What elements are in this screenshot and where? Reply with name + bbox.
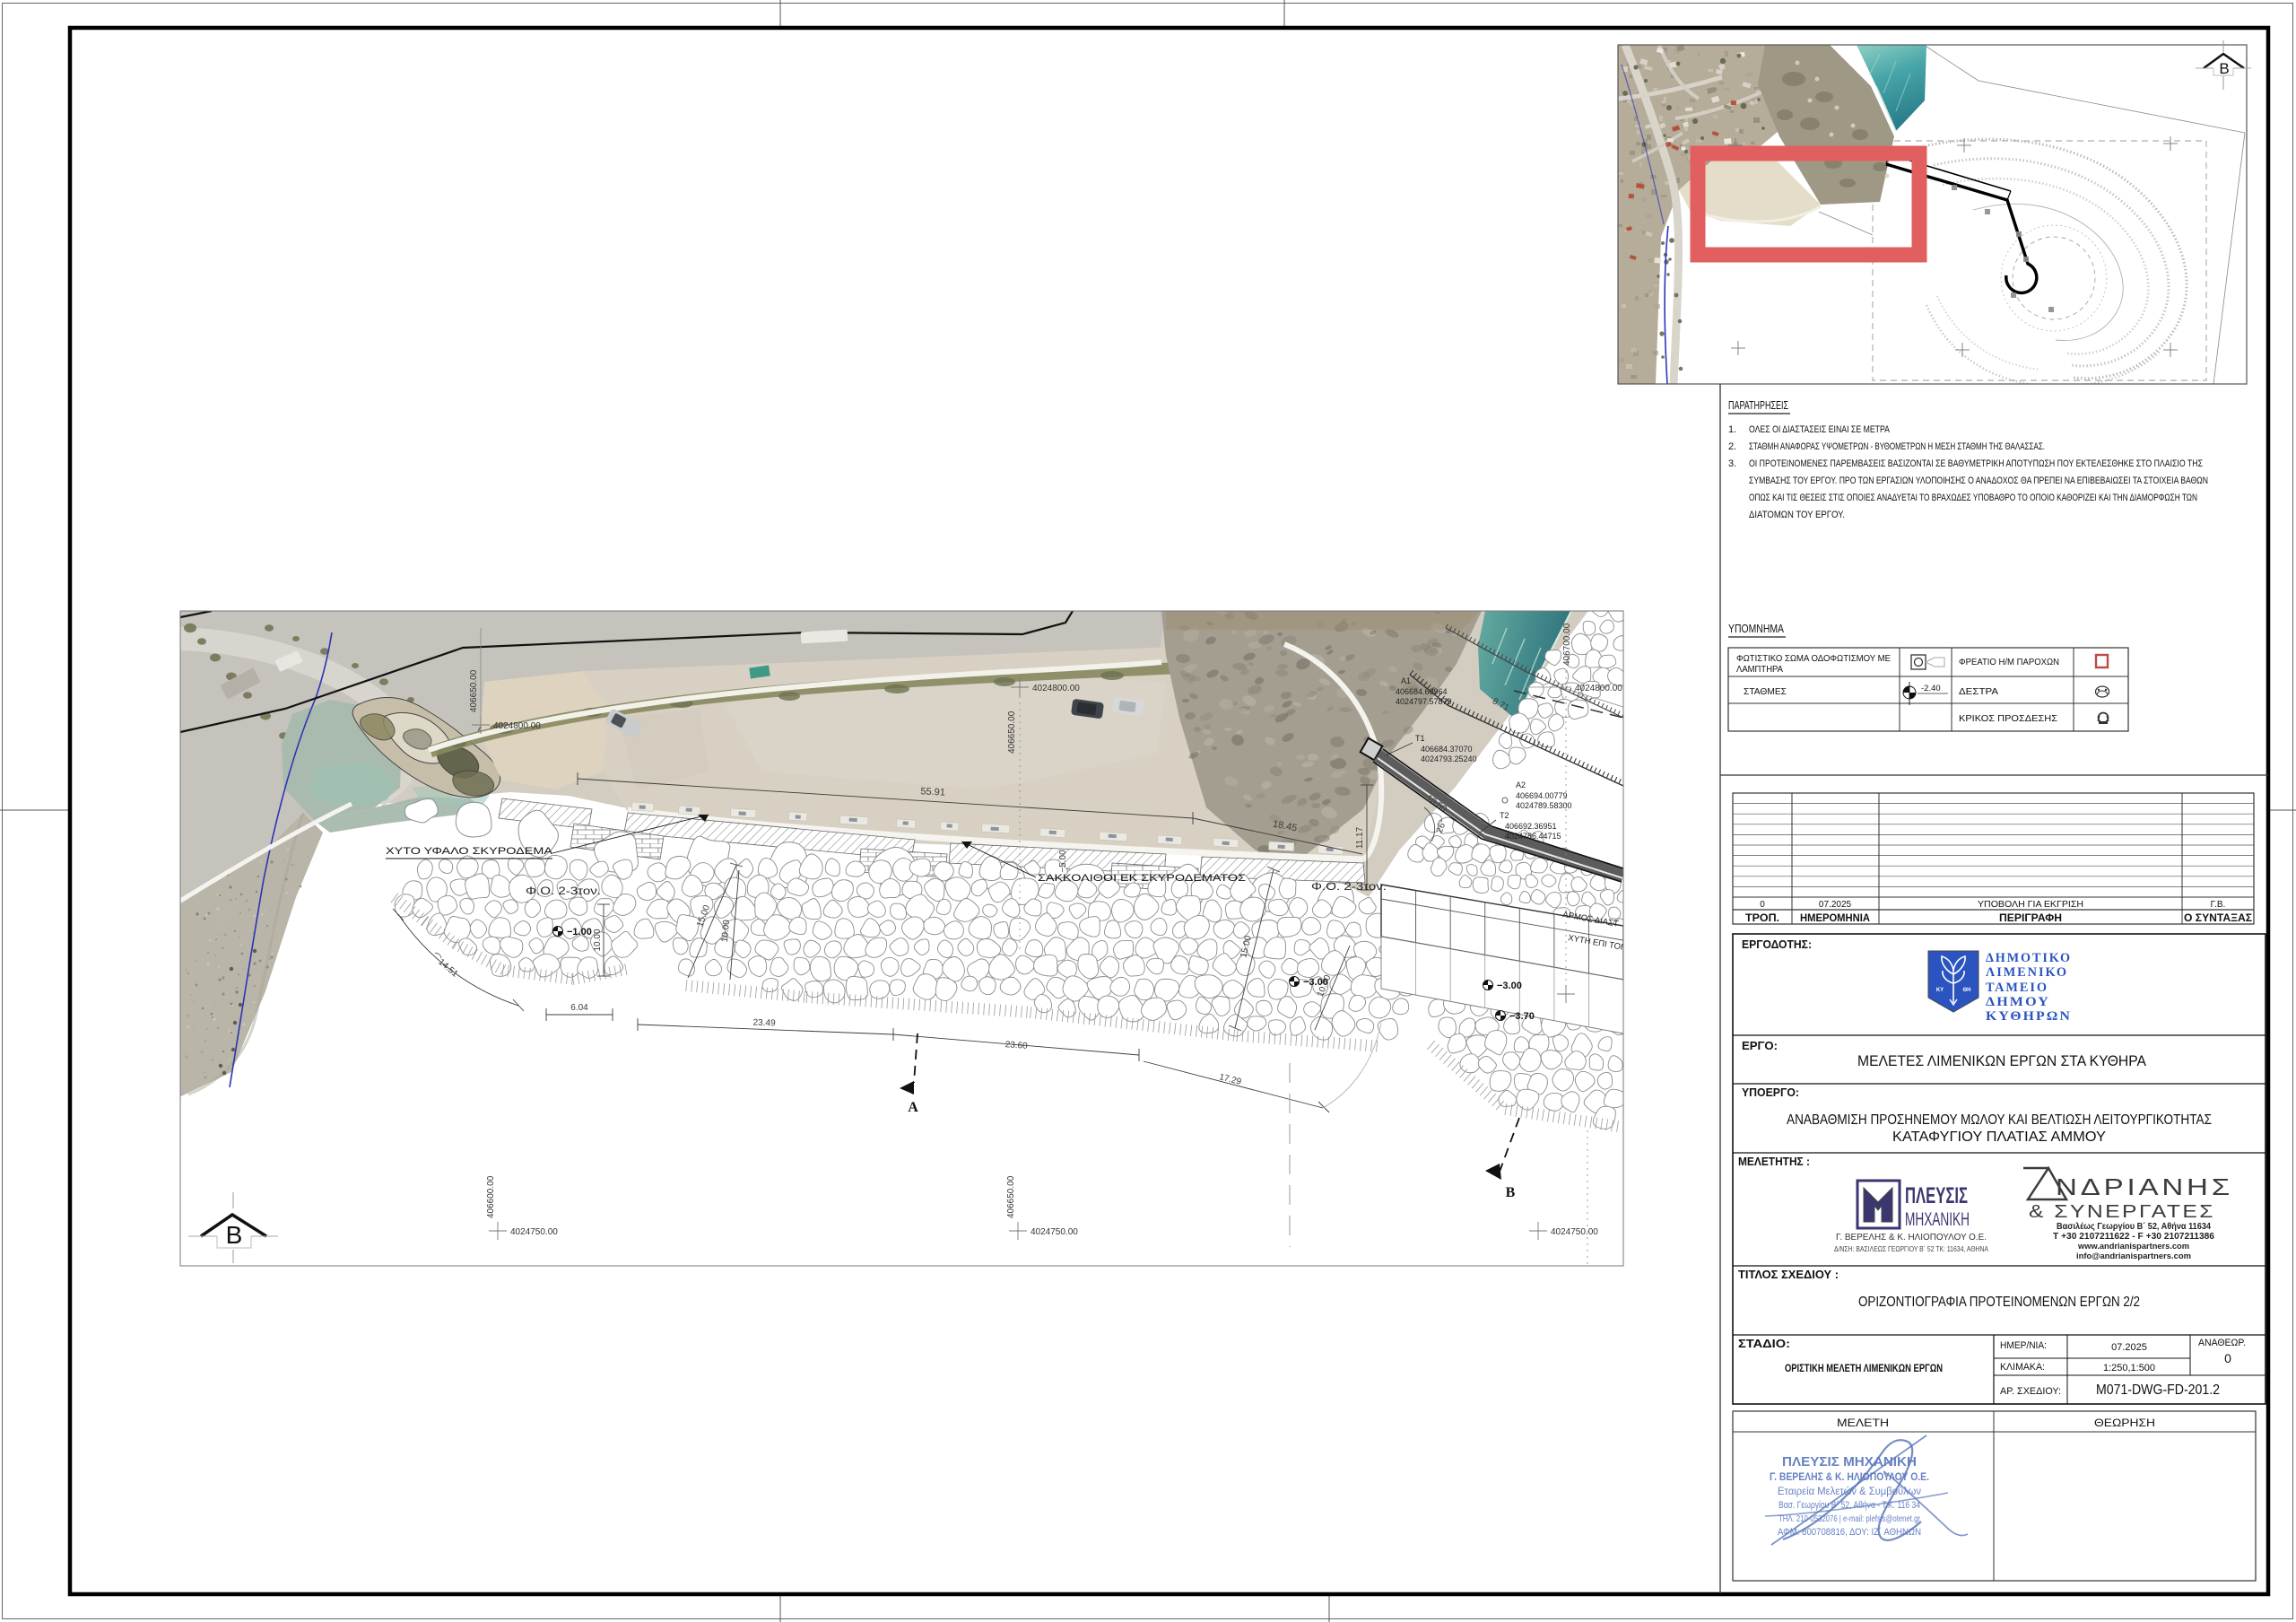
svg-text:A1: A1 xyxy=(1401,676,1411,685)
svg-text:406684.37070: 406684.37070 xyxy=(1421,745,1473,754)
svg-text:ΣΥΜΒΑΣΗΣ ΤΟΥ ΕΡΓΟΥ. ΠΡΟ ΤΩΝ ΕΡ: ΣΥΜΒΑΣΗΣ ΤΟΥ ΕΡΓΟΥ. ΠΡΟ ΤΩΝ ΕΡΓΑΣΙΩΝ ΥΛΟ… xyxy=(1749,475,2208,486)
svg-text:ΟΠΩΣ ΚΑΙ ΤΙΣ ΘΕΣΕΙΣ ΣΤΙΣ ΟΠΟΙΕ: ΟΠΩΣ ΚΑΙ ΤΙΣ ΘΕΣΕΙΣ ΣΤΙΣ ΟΠΟΙΕΣ ΑΝΑΔΥΕΤΑ… xyxy=(1749,493,2197,503)
svg-text:406700.00: 406700.00 xyxy=(1562,623,1572,666)
svg-text:ΤΡΟΠ.: ΤΡΟΠ. xyxy=(1745,913,1779,924)
svg-text:ΠΛΕΥΣΙΣ: ΠΛΕΥΣΙΣ xyxy=(1905,1183,1968,1208)
svg-text:Δ/ΝΣΗ: ΒΑΣΙΛΕΩΣ ΓΕΩΡΓΙΟΥ Β´ 52: Δ/ΝΣΗ: ΒΑΣΙΛΕΩΣ ΓΕΩΡΓΙΟΥ Β´ 52 ΤΚ: 11634… xyxy=(1834,1244,1988,1253)
svg-text:B: B xyxy=(2219,60,2229,77)
svg-text:-2.40: -2.40 xyxy=(1921,684,1941,693)
svg-text:& ΣΥΝΕΡΓΑΤΕΣ: & ΣΥΝΕΡΓΑΤΕΣ xyxy=(2029,1202,2215,1222)
svg-text:406684.60964: 406684.60964 xyxy=(1396,687,1448,696)
svg-text:6.04: 6.04 xyxy=(570,1003,588,1013)
svg-text:Φ.Ο. 2-3τον.: Φ.Ο. 2-3τον. xyxy=(1311,880,1387,893)
svg-text:Γ. ΒΕΡΕΛΗΣ & Κ. ΗΛΙΟΠΟΥΛΟΥ Ο.Ε: Γ. ΒΕΡΕΛΗΣ & Κ. ΗΛΙΟΠΟΥΛΟΥ Ο.Ε. xyxy=(1836,1232,1987,1243)
svg-text:ΔΕΣΤΡΑ: ΔΕΣΤΡΑ xyxy=(1959,686,1998,697)
svg-text:ΣΤΑΘΜΗ ΑΝΑΦΟΡΑΣ ΥΨΟΜΕΤΡΩΝ - ΒΥ: ΣΤΑΘΜΗ ΑΝΑΦΟΡΑΣ ΥΨΟΜΕΤΡΩΝ - ΒΥΘΟΜΕΤΡΩΝ Η… xyxy=(1749,441,2045,452)
svg-text:3.: 3. xyxy=(1728,458,1736,469)
svg-text:23.49: 23.49 xyxy=(752,1018,776,1029)
svg-text:ΑΝΑΘΕΩΡ.: ΑΝΑΘΕΩΡ. xyxy=(2198,1338,2246,1348)
svg-text:55.91: 55.91 xyxy=(920,786,945,798)
svg-text:ΕΡΓΟΔΟΤΗΣ:: ΕΡΓΟΔΟΤΗΣ: xyxy=(1742,938,1812,951)
svg-text:ΥΠΟΜΝΗΜΑ: ΥΠΟΜΝΗΜΑ xyxy=(1728,623,1785,635)
svg-text:23.60: 23.60 xyxy=(1004,1040,1028,1051)
svg-text:ΥΠΟΕΡΓΟ:: ΥΠΟΕΡΓΟ: xyxy=(1742,1086,1799,1099)
svg-text:ΘΗ: ΘΗ xyxy=(1963,988,1971,993)
svg-text:4024750.00: 4024750.00 xyxy=(510,1227,558,1237)
svg-text:ΚΥ: ΚΥ xyxy=(1936,988,1944,993)
svg-text:4024800.00: 4024800.00 xyxy=(1575,684,1622,693)
svg-text:ΕΡΓΟ:: ΕΡΓΟ: xyxy=(1742,1040,1778,1052)
svg-text:ΝΔΡΙΑΝΗΣ: ΝΔΡΙΑΝΗΣ xyxy=(2056,1173,2233,1200)
svg-text:A: A xyxy=(908,1100,918,1115)
svg-text:ΜΗΧΑΝΙΚΗ: ΜΗΧΑΝΙΚΗ xyxy=(1905,1209,1970,1230)
svg-text:M071-DWG-FD-201.2: M071-DWG-FD-201.2 xyxy=(2096,1382,2220,1398)
svg-text:ΣΤΑΘΜΕΣ: ΣΤΑΘΜΕΣ xyxy=(1744,686,1787,697)
svg-text:ΟΡΙΣΤΙΚΗ ΜΕΛΕΤΗ ΛΙΜΕΝΙΚΩΝ ΕΡΓΩ: ΟΡΙΣΤΙΚΗ ΜΕΛΕΤΗ ΛΙΜΕΝΙΚΩΝ ΕΡΓΩΝ xyxy=(1785,1362,1943,1374)
svg-text:ΤΙΤΛΟΣ ΣΧΕΔΙΟΥ :: ΤΙΤΛΟΣ ΣΧΕΔΙΟΥ : xyxy=(1738,1269,1839,1281)
svg-text:ΚΡΙΚΟΣ ΠΡΟΣΔΕΣΗΣ: ΚΡΙΚΟΣ ΠΡΟΣΔΕΣΗΣ xyxy=(1959,713,2058,724)
svg-text:A2: A2 xyxy=(1516,780,1526,789)
svg-text:10.00: 10.00 xyxy=(593,929,603,951)
svg-text:1:250,1:500: 1:250,1:500 xyxy=(2103,1363,2155,1373)
svg-text:10.00: 10.00 xyxy=(720,919,732,942)
svg-text:−1.00: −1.00 xyxy=(567,927,592,937)
svg-text:ΣΑΚΚΟΛΙΘΟΙ ΕΚ ΣΚΥΡΟΔΕΜΑΤΟΣ: ΣΑΚΚΟΛΙΘΟΙ ΕΚ ΣΚΥΡΟΔΕΜΑΤΟΣ xyxy=(1038,873,1246,884)
svg-text:4024789.58300: 4024789.58300 xyxy=(1516,801,1572,810)
svg-text:ΔΗΜΟΥ: ΔΗΜΟΥ xyxy=(1986,995,2050,1009)
svg-text:ΛΑΜΠΤΗΡΑ: ΛΑΜΠΤΗΡΑ xyxy=(1736,664,1783,675)
svg-text:4024800.00: 4024800.00 xyxy=(1032,684,1080,693)
svg-text:www.andrianispartners.com: www.andrianispartners.com xyxy=(2077,1242,2189,1251)
svg-text:ΑΡ. ΣΧΕΔΙΟΥ:: ΑΡ. ΣΧΕΔΙΟΥ: xyxy=(2000,1386,2061,1397)
svg-text:ΠΑΡΑΤΗΡΗΣΕΙΣ: ΠΑΡΑΤΗΡΗΣΕΙΣ xyxy=(1728,399,1788,412)
svg-text:ΧΥΤΟ ΥΦΑΛΟ ΣΚΥΡΟΔΕΜΑ: ΧΥΤΟ ΥΦΑΛΟ ΣΚΥΡΟΔΕΜΑ xyxy=(386,846,553,857)
svg-text:4024750.00: 4024750.00 xyxy=(1551,1227,1598,1237)
svg-text:ΗΜΕΡΟΜΗΝΙΑ: ΗΜΕΡΟΜΗΝΙΑ xyxy=(1800,913,1870,924)
svg-text:ΟΡΙΖΟΝΤΙΟΓΡΑΦΙΑ ΠΡΟΤΕΙΝΟΜΕΝΩΝ: ΟΡΙΖΟΝΤΙΟΓΡΑΦΙΑ ΠΡΟΤΕΙΝΟΜΕΝΩΝ ΕΡΓΩΝ 2/2 xyxy=(1858,1295,2140,1310)
svg-text:Ο ΣΥΝΤΑΞΑΣ: Ο ΣΥΝΤΑΞΑΣ xyxy=(2184,913,2252,924)
svg-text:406694.00779: 406694.00779 xyxy=(1516,791,1568,800)
svg-text:4024793.25240: 4024793.25240 xyxy=(1421,754,1477,763)
svg-text:4024786.44715: 4024786.44715 xyxy=(1505,832,1561,841)
svg-text:406692.36951: 406692.36951 xyxy=(1505,822,1557,831)
svg-text:ΑΝΑΒΑΘΜΙΣΗ ΠΡΟΣΗΝΕΜΟΥ ΜΩΛΟΥ ΚΑ: ΑΝΑΒΑΘΜΙΣΗ ΠΡΟΣΗΝΕΜΟΥ ΜΩΛΟΥ ΚΑΙ ΒΕΛΤΙΩΣΗ… xyxy=(1787,1112,2212,1128)
svg-text:Φ.Ο. 2-3τον.: Φ.Ο. 2-3τον. xyxy=(526,885,601,897)
svg-text:ΟΙ ΠΡΟΤΕΙΝΟΜΕΝΕΣ ΠΑΡΕΜΒΑΣΕΙΣ Β: ΟΙ ΠΡΟΤΕΙΝΟΜΕΝΕΣ ΠΑΡΕΜΒΑΣΕΙΣ ΒΑΣΙΖΟΝΤΑΙ … xyxy=(1749,458,2203,469)
svg-text:406600.00: 406600.00 xyxy=(486,1175,496,1218)
svg-text:07.2025: 07.2025 xyxy=(2111,1342,2147,1353)
svg-text:4024800.00: 4024800.00 xyxy=(493,721,541,731)
svg-text:0: 0 xyxy=(1760,900,1765,910)
svg-text:406650.00: 406650.00 xyxy=(469,669,479,712)
svg-text:−5.00: −5.00 xyxy=(1058,850,1068,873)
svg-text:T2: T2 xyxy=(1500,811,1509,820)
svg-text:ΔΙΑΤΟΜΩΝ ΤΟΥ ΕΡΓΟΥ.: ΔΙΑΤΟΜΩΝ ΤΟΥ ΕΡΓΟΥ. xyxy=(1749,510,1845,520)
svg-text:ΦΩΤΙΣΤΙΚΟ ΣΩΜΑ ΟΔΟΦΩΤΙΣΜΟΥ ΜΕ: ΦΩΤΙΣΤΙΚΟ ΣΩΜΑ ΟΔΟΦΩΤΙΣΜΟΥ ΜΕ xyxy=(1736,653,1891,664)
svg-text:ΤΗΛ. 210-0532076 | e-mail: ple: ΤΗΛ. 210-0532076 | e-mail: plefsis@otene… xyxy=(1779,1513,1920,1524)
svg-text:info@andrianispartners.com: info@andrianispartners.com xyxy=(2076,1251,2191,1261)
svg-text:2.: 2. xyxy=(1728,441,1736,452)
svg-text:4024797.57879: 4024797.57879 xyxy=(1396,697,1452,706)
svg-text:B: B xyxy=(226,1221,243,1249)
svg-text:ΜΕΛΕΤΕΣ ΛΙΜΕΝΙΚΩΝ ΕΡΓΩΝ ΣΤΑ ΚΥ: ΜΕΛΕΤΕΣ ΛΙΜΕΝΙΚΩΝ ΕΡΓΩΝ ΣΤΑ ΚΥΘΗΡΑ xyxy=(1857,1053,2146,1069)
svg-text:ΚΑΤΑΦΥΓΙΟΥ ΠΛΑΤΙΑΣ ΑΜΜΟΥ: ΚΑΤΑΦΥΓΙΟΥ ΠΛΑΤΙΑΣ ΑΜΜΟΥ xyxy=(1892,1129,2106,1145)
svg-text:1.: 1. xyxy=(1728,424,1736,435)
svg-text:Βασιλέως Γεωργίου Β´ 52, Αθήνα: Βασιλέως Γεωργίου Β´ 52, Αθήνα 11634 xyxy=(2057,1222,2211,1232)
svg-text:−3.70: −3.70 xyxy=(1509,1011,1535,1022)
svg-text:−3.00: −3.00 xyxy=(1497,981,1522,991)
svg-text:11.17: 11.17 xyxy=(1355,826,1365,849)
svg-text:0: 0 xyxy=(2224,1351,2231,1365)
svg-text:ΗΜΕΡ/ΝΙΑ:: ΗΜΕΡ/ΝΙΑ: xyxy=(2000,1340,2047,1351)
svg-text:ΛΙΜΕΝΙΚΟ: ΛΙΜΕΝΙΚΟ xyxy=(1986,965,2068,980)
svg-text:406650.00: 406650.00 xyxy=(1007,711,1017,754)
svg-text:ΟΛΕΣ ΟΙ ΔΙΑΣΤΑΣΕΙΣ ΕΙΝΑΙ ΣΕ ΜΕ: ΟΛΕΣ ΟΙ ΔΙΑΣΤΑΣΕΙΣ ΕΙΝΑΙ ΣΕ ΜΕΤΡΑ xyxy=(1749,424,1891,435)
svg-text:ΦΡΕΑΤΙΟ Η/Μ ΠΑΡΟΧΩΝ: ΦΡΕΑΤΙΟ Η/Μ ΠΑΡΟΧΩΝ xyxy=(1959,657,2059,667)
svg-text:ΚΛΙΜΑΚΑ:: ΚΛΙΜΑΚΑ: xyxy=(2000,1362,2045,1373)
svg-text:T1: T1 xyxy=(1415,734,1425,743)
svg-text:ΣΤΑΔΙΟ:: ΣΤΑΔΙΟ: xyxy=(1738,1338,1790,1350)
svg-text:ΤΑΜΕΙΟ: ΤΑΜΕΙΟ xyxy=(1986,981,2048,995)
svg-text:B: B xyxy=(1506,1185,1516,1200)
svg-text:T +30 2107211622 - F +30 21072: T +30 2107211622 - F +30 2107211386 xyxy=(2053,1232,2214,1242)
svg-text:ΚΥΘΗΡΩΝ: ΚΥΘΗΡΩΝ xyxy=(1986,1009,2072,1024)
svg-text:07.2025: 07.2025 xyxy=(1819,900,1852,910)
svg-text:406650.00: 406650.00 xyxy=(1006,1175,1016,1218)
svg-text:4024750.00: 4024750.00 xyxy=(1031,1227,1078,1237)
svg-text:ΘΕΩΡΗΣΗ: ΘΕΩΡΗΣΗ xyxy=(2094,1417,2155,1429)
svg-text:Γ.Β.: Γ.Β. xyxy=(2211,900,2226,910)
svg-text:ΥΠΟΒΟΛΗ ΓΙΑ ΕΚΓΡΙΣΗ: ΥΠΟΒΟΛΗ ΓΙΑ ΕΚΓΡΙΣΗ xyxy=(1978,900,2083,910)
svg-text:ΜΕΛΕΤΗ: ΜΕΛΕΤΗ xyxy=(1837,1417,1889,1429)
svg-text:ΠΕΡΙΓΡΑΦΗ: ΠΕΡΙΓΡΑΦΗ xyxy=(1999,913,2062,924)
svg-text:Εταιρεία Μελετών & Συμβούλων: Εταιρεία Μελετών & Συμβούλων xyxy=(1778,1485,1921,1497)
svg-text:ΔΗΜΟΤΙΚΟ: ΔΗΜΟΤΙΚΟ xyxy=(1986,951,2072,965)
svg-text:ΜΕΛΕΤΗΤΗΣ :: ΜΕΛΕΤΗΤΗΣ : xyxy=(1738,1155,1810,1168)
